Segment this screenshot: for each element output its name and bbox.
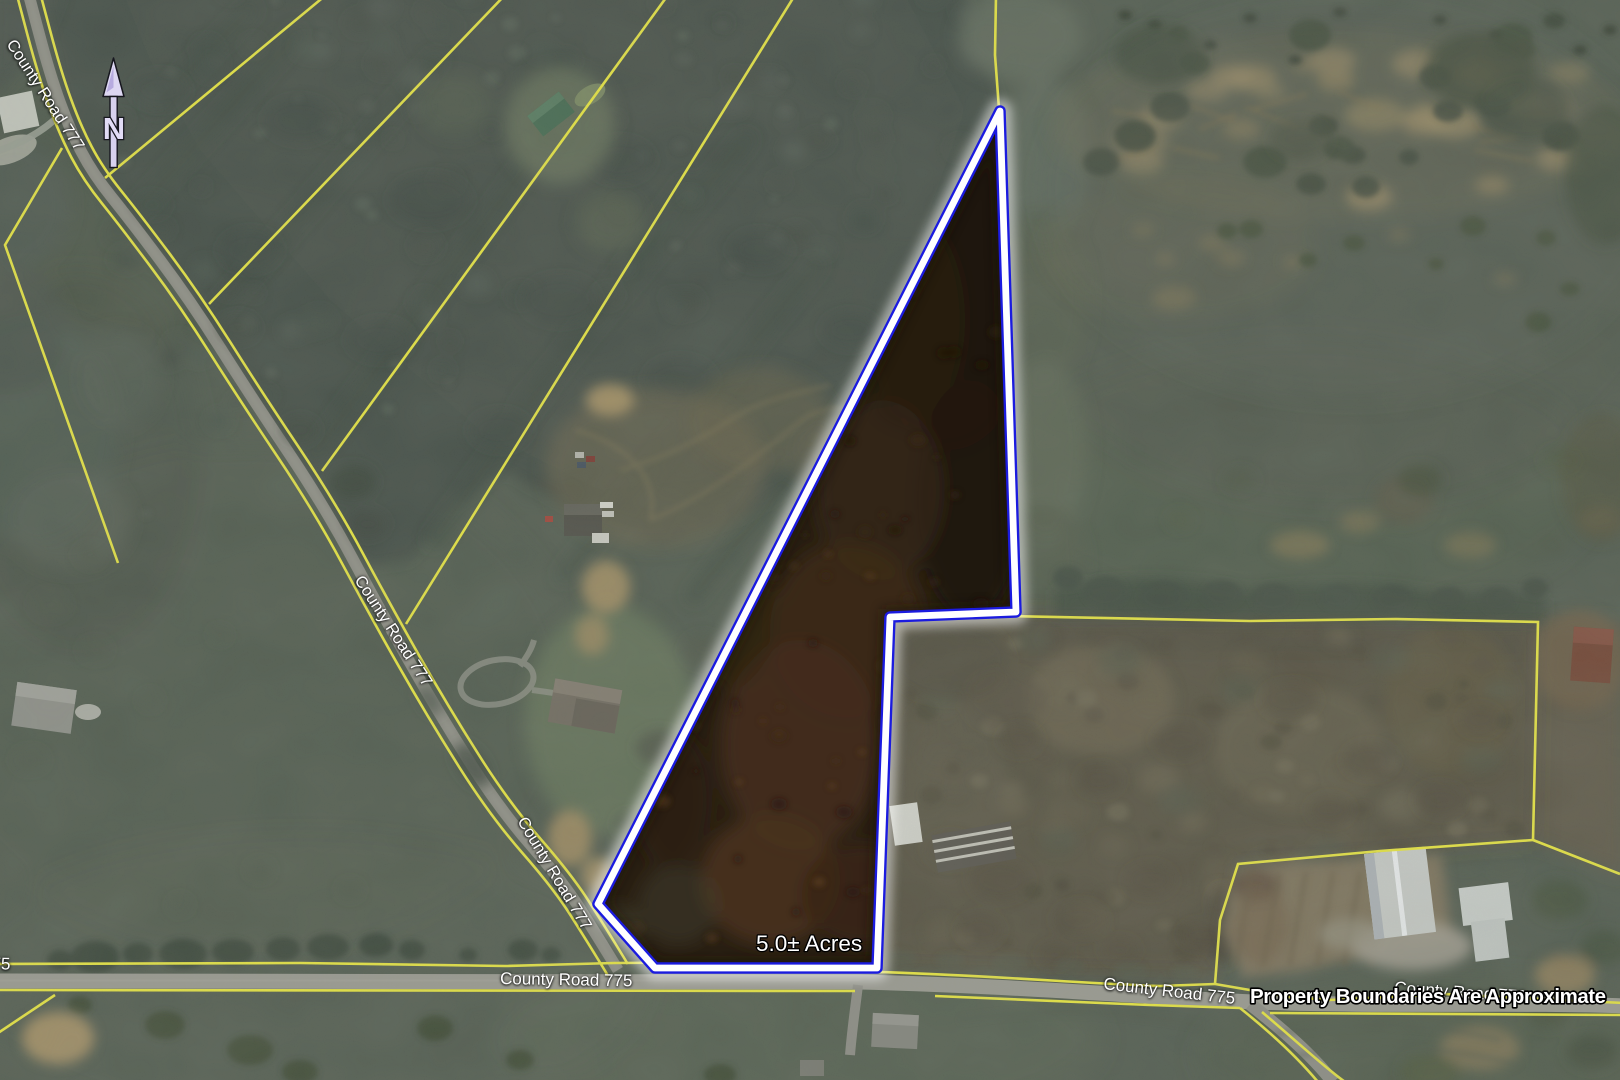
svg-text:N: N (103, 111, 125, 146)
svg-text:County Road 775: County Road 775 (500, 969, 633, 990)
svg-text:775: 775 (0, 954, 11, 973)
svg-text:5.0± Acres: 5.0± Acres (756, 931, 862, 956)
svg-text:Property Boundaries Are Approx: Property Boundaries Are Approximate (1250, 985, 1606, 1008)
